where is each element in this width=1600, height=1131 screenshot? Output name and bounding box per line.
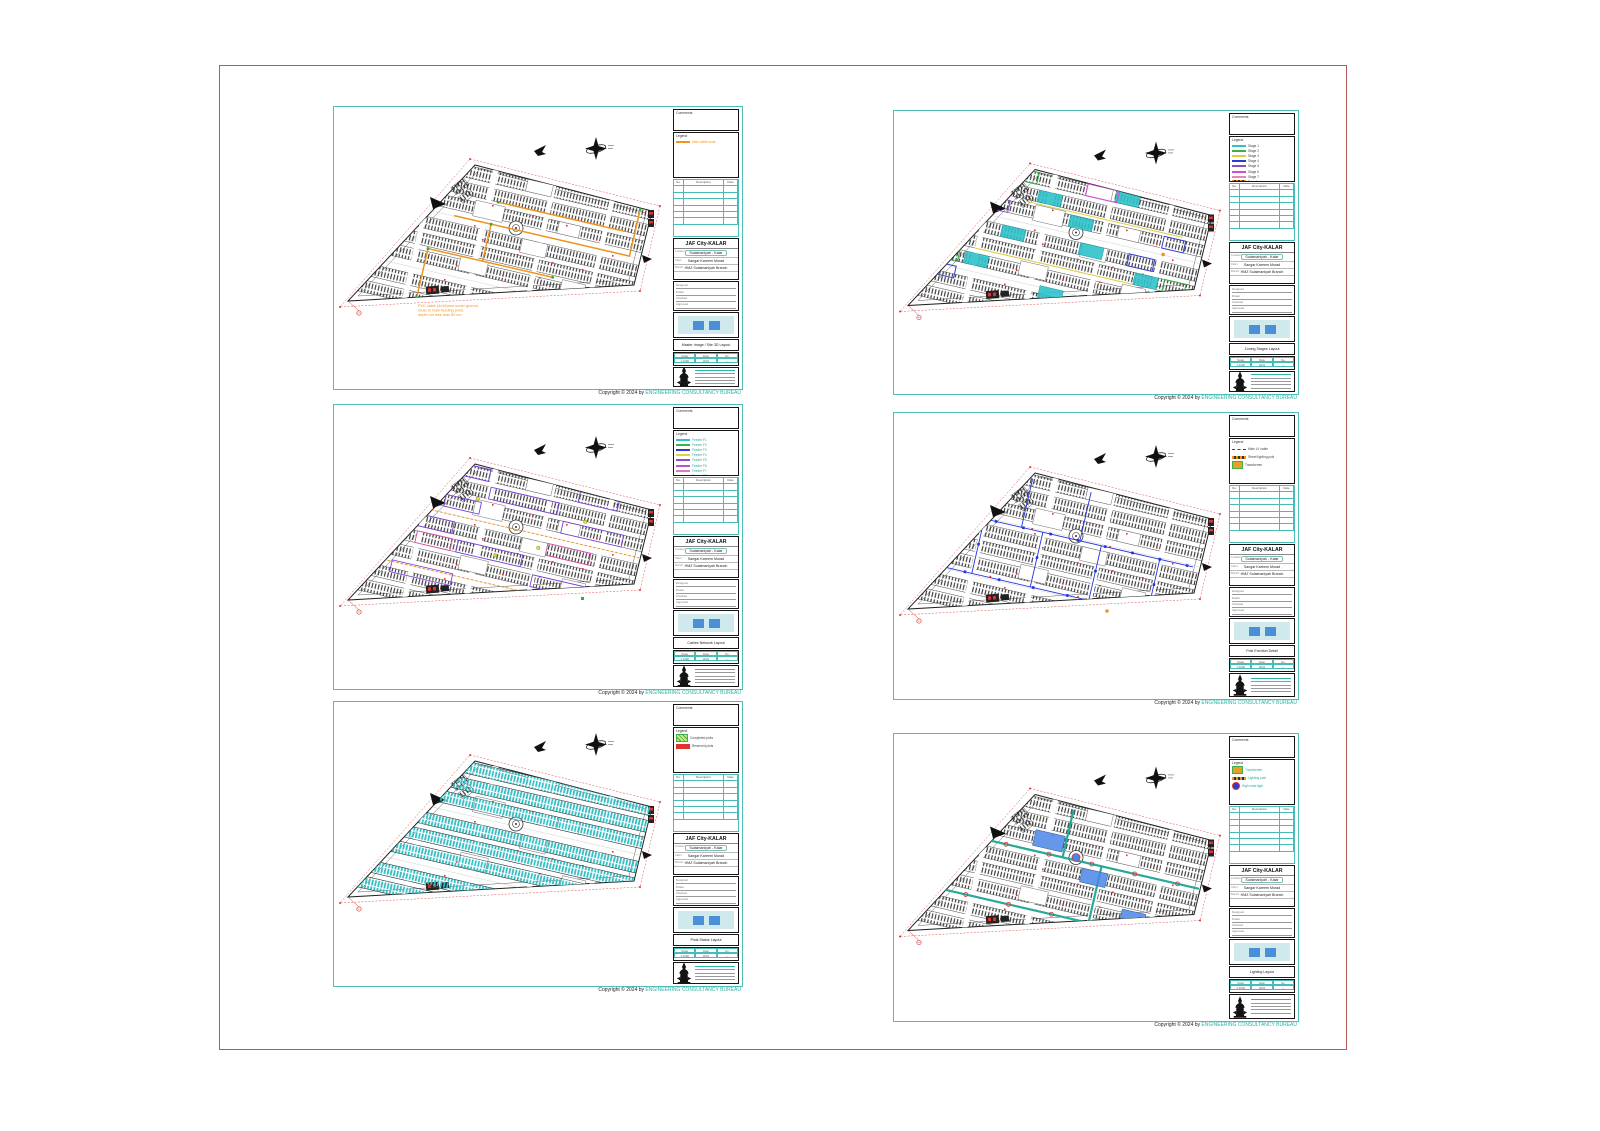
svg-text:depth not less than 80 cm: depth not less than 80 cm — [418, 313, 461, 317]
info-rows: Designed Drawn Checked Approved — [1229, 285, 1295, 315]
orange-marker — [1105, 609, 1109, 613]
legend-box: Legend Completed plots Reserved plots — [673, 727, 739, 773]
minaret-logo-icon — [675, 367, 693, 387]
logo-box — [1229, 371, 1295, 392]
thumbnail-box — [673, 610, 739, 636]
sheet-b: Comments Legend Stage 1 Stage 2 Stage 3 … — [893, 110, 1299, 395]
copyright-line: Copyright © 2024 by ENGINEERING CONSULTA… — [1077, 700, 1297, 706]
title-block: Comments Legend Feeder F1 Feeder F2 Feed… — [673, 407, 739, 687]
lv-cable-swatch — [1232, 449, 1246, 450]
mini-table: ScaleDateNo. 1:10002024— — [1229, 979, 1295, 993]
copyright-line: Copyright © 2024 by ENGINEERING CONSULTA… — [1077, 1022, 1297, 1028]
drawing-title: Zoning Stages Layout — [1229, 343, 1295, 355]
info-rows: Designed Drawn Checked Approved — [673, 579, 739, 609]
revision-table: No.DescriptionDate — [673, 179, 739, 237]
logo-box — [673, 962, 739, 984]
thumbnail-box — [673, 907, 739, 933]
thumbnail-box — [1229, 939, 1295, 965]
revision-table: No.DescriptionDate — [1229, 485, 1295, 543]
project-name: JAF City-KALAR — [674, 239, 738, 249]
logo-box — [1229, 673, 1295, 697]
minaret-logo-icon — [675, 962, 693, 984]
comments-box: Comments — [1229, 113, 1295, 135]
sheet-d: Comments Legend Main LV cable Street lig… — [893, 412, 1299, 700]
site-plan-f — [894, 734, 1230, 1021]
logo-box — [1229, 994, 1295, 1019]
mini-table: ScaleDateNo. 1:10002024— — [1229, 658, 1295, 672]
title-block: Comments Legend Main LV cable Street lig… — [1229, 415, 1295, 697]
drawing-title: Cables Network Layout — [673, 637, 739, 649]
thumbnail-image — [709, 321, 720, 330]
info-rows: Designed Drawn Checked Approved — [1229, 587, 1295, 617]
transformer-swatch — [1232, 766, 1243, 774]
title-block: Comments Legend Main cable route No.Desc… — [673, 109, 739, 387]
info-rows: Designed Drawn Checked Approved — [673, 281, 739, 311]
mini-table: ScaleDateNo. 1:10002024— — [673, 352, 739, 366]
drawing-title: Lighting Layout — [1229, 966, 1295, 978]
minaret-logo-icon — [1231, 371, 1249, 392]
legend-box: Legend Stage 1 Stage 2 Stage 3 Stage 4 S… — [1229, 136, 1295, 182]
drawing-title: Master Image / Site 3D Layout — [673, 339, 739, 351]
thumbnail-box — [1229, 618, 1295, 644]
green-marker — [581, 597, 584, 600]
sheet-f: Comments Legend Transformer Lighting pol… — [893, 733, 1299, 1022]
site-plan-base — [339, 137, 661, 353]
site-plan-c — [334, 405, 670, 689]
transformer-swatch — [1232, 180, 1246, 182]
site-plan-b — [894, 111, 1230, 394]
logo-box — [673, 367, 739, 387]
svg-text:route to main feeding point,: route to main feeding point, — [418, 309, 464, 313]
project-info: JAF City-KALAR LocationSulaimaniyah - Ka… — [673, 238, 739, 280]
revision-table: No.DescriptionDate — [673, 477, 739, 535]
copyright-line: Copyright © 2024 by ENGINEERING CONSULTA… — [521, 390, 741, 396]
plan-annotation: PVC cable (4x16)mm under ground, — [418, 304, 479, 308]
drawing-title: Pole Erection Detail — [1229, 645, 1295, 657]
comments-box: Comments — [1229, 415, 1295, 437]
contact-lines — [695, 370, 737, 385]
roundabout-light — [1072, 854, 1080, 862]
legend-box: Legend Main LV cable Street lighting pol… — [1229, 438, 1295, 484]
copyright-line: Copyright © 2024 by ENGINEERING CONSULTA… — [521, 987, 741, 993]
comments-box: Comments — [673, 407, 739, 429]
copyright-line: Copyright © 2024 by ENGINEERING CONSULTA… — [521, 690, 741, 696]
project-info: JAF City-KALAR LocationSulaimaniyah - Ka… — [673, 536, 739, 578]
legend-swatch — [676, 141, 690, 143]
reserved-plots-swatch — [676, 744, 690, 749]
comments-box: Comments — [673, 704, 739, 726]
legend-box: Legend Main cable route — [673, 132, 739, 178]
site-plan-d — [894, 413, 1230, 699]
info-rows: Designed Drawn Checked Approved — [1229, 908, 1295, 938]
mini-table: ScaleDateNo. 1:10002024— — [673, 650, 739, 664]
legend-box: Legend Transformer Lighting pole High ma… — [1229, 759, 1295, 805]
drawing-title: Plots Status Layout — [673, 934, 739, 946]
info-rows: Designed Drawn Checked Approved — [673, 876, 739, 906]
revision-table: No.DescriptionDate — [1229, 806, 1295, 864]
revision-table: No.DescriptionDate — [673, 774, 739, 832]
site-plan-e — [334, 702, 670, 986]
minaret-logo-icon — [1231, 673, 1249, 697]
minaret-logo-icon — [1231, 995, 1249, 1019]
title-block: Comments Legend Completed plots Reserved… — [673, 704, 739, 984]
mini-table: ScaleDateNo. 1:10002024— — [673, 947, 739, 961]
completed-plots-swatch — [676, 734, 688, 742]
high-mast-swatch — [1232, 782, 1240, 790]
thumbnail-image — [693, 321, 704, 330]
sheet-e: Comments Legend Completed plots Reserved… — [333, 701, 743, 987]
project-info: JAF City-KALAR LocationSulaimaniyah - Ka… — [1229, 544, 1295, 586]
transformer-swatch — [1232, 461, 1243, 469]
title-block: Comments Legend Transformer Lighting pol… — [1229, 736, 1295, 1019]
street-light-swatch — [1232, 456, 1246, 459]
site-plan-a: PVC cable (4x16)mm under ground, route t… — [334, 107, 670, 389]
lighting-pole-swatch — [1232, 777, 1246, 780]
thumbnail-box — [1229, 316, 1295, 342]
minaret-logo-icon — [675, 665, 693, 687]
logo-box — [673, 665, 739, 687]
project-info: JAF City-KALAR LocationSulaimaniyah - Ka… — [673, 833, 739, 875]
comments-box: Comments — [1229, 736, 1295, 758]
legend-box: Legend Feeder F1 Feeder F2 Feeder F3 Fee… — [673, 430, 739, 476]
sheet-a: PVC cable (4x16)mm under ground, route t… — [333, 106, 743, 390]
comments-box: Comments — [673, 109, 739, 131]
legend-entry: Main cable route — [674, 139, 738, 144]
thumbnail-box — [673, 312, 739, 338]
sheet-c: Comments Legend Feeder F1 Feeder F2 Feed… — [333, 404, 743, 690]
project-info: JAF City-KALAR LocationSulaimaniyah - Ka… — [1229, 865, 1295, 907]
project-info: JAF City-KALAR LocationSulaimaniyah - Ka… — [1229, 242, 1295, 284]
copyright-line: Copyright © 2024 by ENGINEERING CONSULTA… — [1077, 395, 1297, 401]
title-block: Comments Legend Stage 1 Stage 2 Stage 3 … — [1229, 113, 1295, 392]
revision-table: No.DescriptionDate — [1229, 183, 1295, 241]
mini-table: ScaleDateNo. 1:10002024— — [1229, 356, 1295, 370]
